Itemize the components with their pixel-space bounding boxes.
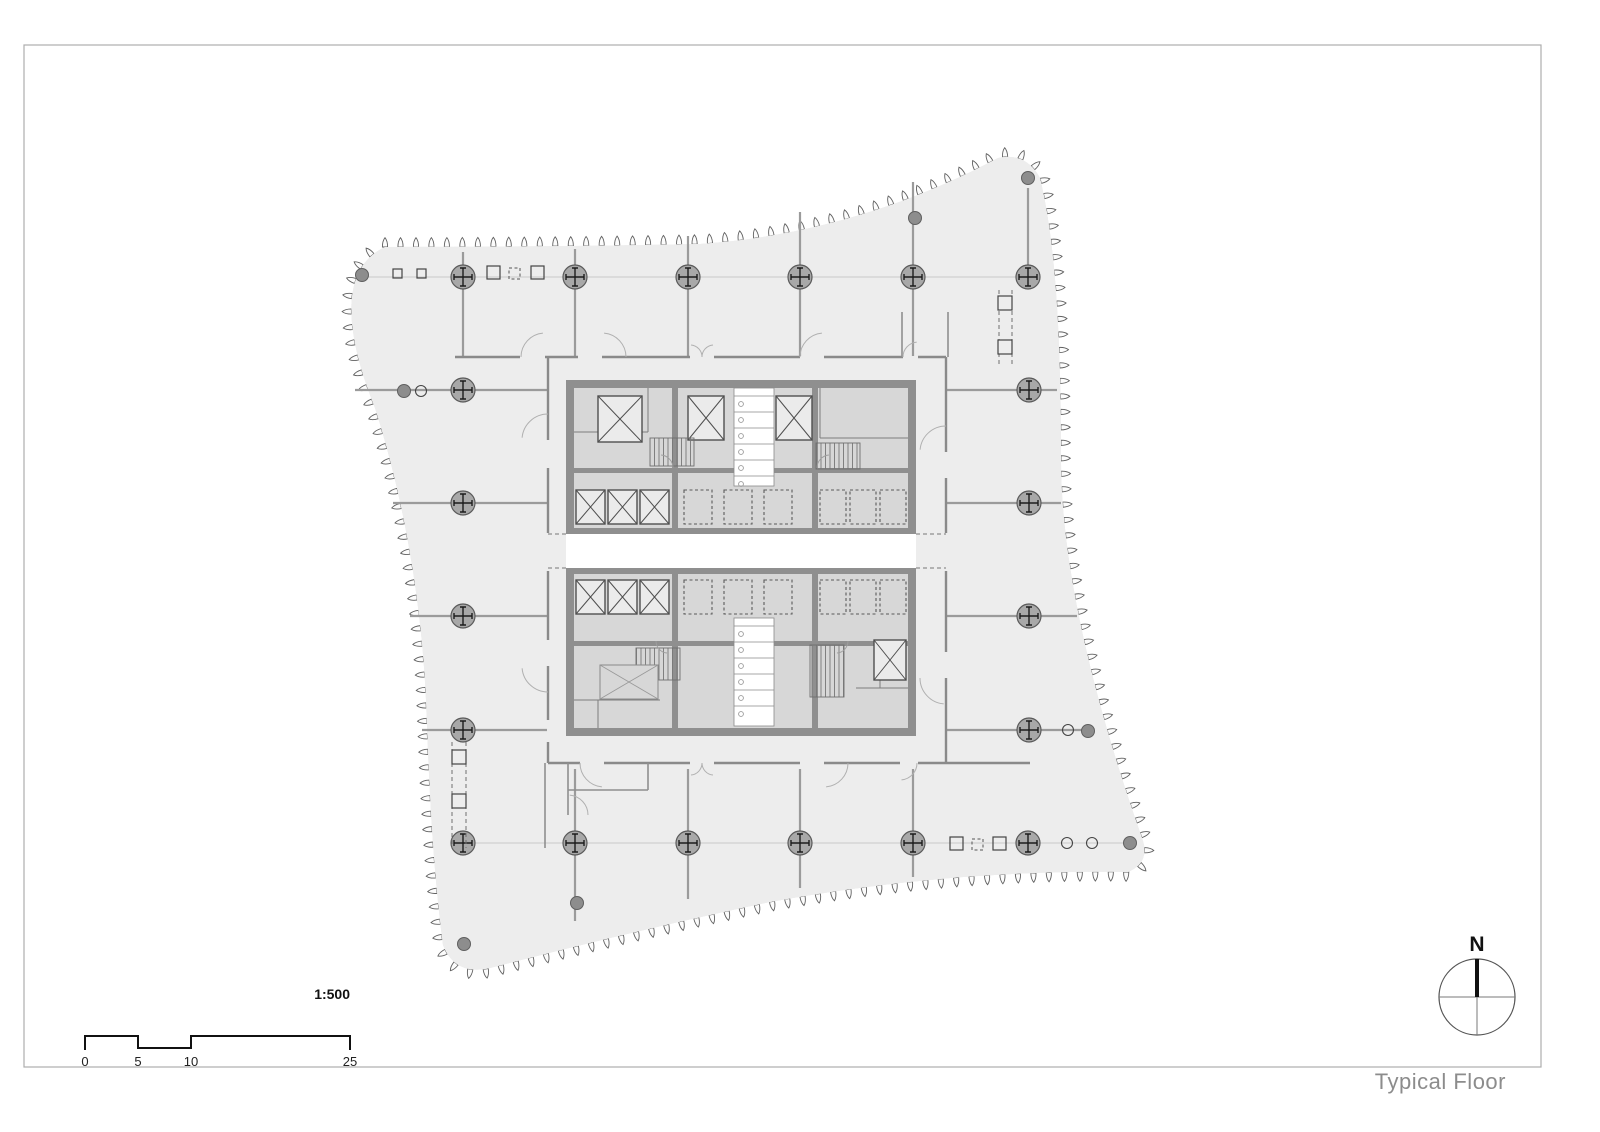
facade-fin (420, 780, 430, 786)
facade-fin (1000, 874, 1006, 884)
facade-fin (1058, 331, 1068, 337)
service-core (548, 380, 946, 736)
facade-fin (1056, 285, 1066, 291)
facade-fin (384, 473, 394, 480)
facade-fin (429, 238, 434, 247)
facade-fin (506, 237, 511, 246)
facade-fin (676, 235, 681, 244)
facade-fin (618, 935, 625, 945)
facade-fin (739, 907, 746, 917)
facade-fin (1091, 668, 1101, 675)
facade-fin (381, 458, 391, 465)
facade-fin (871, 200, 879, 210)
facade-fin (1046, 872, 1051, 881)
grid-dot (398, 385, 411, 398)
facade-fin (573, 946, 580, 956)
facade-fin (694, 917, 701, 927)
facade-fin (1018, 150, 1026, 161)
facade-fin (1067, 547, 1077, 553)
facade-fin (1130, 800, 1140, 808)
facade-fin (664, 924, 671, 934)
facade-fin (861, 887, 867, 897)
facade-fin (343, 292, 353, 298)
facade-fin (421, 796, 431, 802)
facade-fin (417, 718, 426, 724)
facade-fin (1070, 562, 1080, 569)
facade-fin (391, 503, 401, 510)
grid-dot (1082, 725, 1095, 738)
facade-fin (432, 934, 442, 940)
facade-fin (815, 893, 822, 903)
facade-fin (614, 236, 619, 245)
facade-fin (368, 414, 378, 422)
facade-fin (343, 324, 353, 330)
scale-bar-graphic (85, 1036, 350, 1050)
facade-fin (943, 172, 952, 183)
facade-fin (1046, 207, 1056, 214)
facade-fin (633, 931, 640, 941)
facade-fin (1062, 486, 1072, 492)
drawing-sheet: 1:500 0 5 10 25 N Typical Floor (0, 0, 1600, 1132)
facade-fin (400, 549, 410, 556)
facade-fin (1081, 623, 1091, 630)
stair-flight (650, 438, 694, 466)
facade-fin (345, 340, 355, 347)
facade-fin (1002, 148, 1008, 158)
grid-dot (1124, 837, 1137, 850)
facade-fin (1093, 872, 1098, 881)
scale-ratio-label: 1:500 (314, 986, 350, 1002)
facade-fin (353, 370, 363, 378)
facade-fin (1075, 592, 1085, 599)
feature-square-symbol (998, 340, 1012, 354)
facade-fin (954, 877, 960, 887)
stair-flight (816, 443, 860, 469)
facade-fin (812, 217, 819, 227)
facade-fin (984, 875, 990, 885)
facade-fin (1095, 682, 1105, 689)
facade-fin (388, 488, 398, 495)
facade-fin (528, 957, 535, 967)
facade-fin (827, 213, 834, 223)
facade-fin (630, 236, 635, 245)
facade-fin (429, 904, 439, 910)
facade-fin (1144, 848, 1153, 854)
facade-fin (1099, 697, 1109, 704)
facade-fin (1058, 316, 1068, 322)
grid-dot (458, 938, 471, 951)
facade-fin (1060, 378, 1069, 383)
scale-mark-25: 25 (343, 1054, 357, 1069)
facade-fin (831, 891, 838, 901)
facade-fin (737, 231, 743, 241)
facade-fin (1123, 872, 1128, 881)
facade-fin (1049, 223, 1059, 229)
facade-fin (1108, 872, 1113, 881)
facade-fin (424, 842, 434, 848)
facade-fin (398, 238, 403, 247)
facade-fin (649, 928, 656, 938)
facade-fin (900, 190, 908, 201)
facade-fin (419, 765, 429, 771)
facade-fin (1062, 872, 1067, 881)
facade-fin (782, 223, 789, 233)
facade-fin (422, 811, 432, 817)
toilet-block (734, 618, 774, 726)
facade-fin (382, 238, 387, 247)
facade-fin (483, 969, 490, 979)
facade-fin (568, 237, 573, 246)
facade-fin (709, 914, 716, 924)
facade-fin (769, 901, 776, 911)
facade-fin (1077, 872, 1082, 881)
facade-fin (363, 399, 374, 407)
facade-fin (645, 236, 650, 245)
facade-fin (423, 827, 433, 833)
facade-fin (1107, 727, 1117, 735)
facade-fin (1060, 363, 1069, 368)
facade-fin (342, 309, 351, 314)
facade-fin (372, 429, 382, 437)
facade-fin (475, 237, 480, 246)
scale-bar: 1:500 0 5 10 25 (81, 986, 357, 1069)
facade-fin (431, 919, 441, 925)
drawing-title: Typical Floor (1375, 1069, 1506, 1094)
facade-fin (679, 921, 686, 931)
facade-fin (886, 195, 894, 205)
scale-mark-0: 0 (81, 1054, 88, 1069)
facade-fin (426, 873, 436, 879)
core-wall (566, 728, 916, 736)
facade-fin (1121, 771, 1131, 779)
facade-fin (1015, 874, 1021, 884)
facade-fin (914, 184, 922, 195)
facade-fin (907, 882, 913, 892)
facade-fin (466, 969, 473, 979)
facade-fin (707, 234, 713, 244)
facade-fin (425, 857, 435, 863)
facade-fin (846, 889, 852, 899)
facade-fin (415, 672, 425, 678)
facade-fin (1057, 300, 1067, 306)
north-arrow: N (1439, 933, 1515, 1035)
facade-fin (1061, 456, 1070, 461)
core-wall (566, 380, 916, 388)
facade-fin (377, 443, 387, 450)
facade-fin (661, 235, 666, 244)
facade-fin (692, 235, 697, 244)
facade-fin (543, 953, 550, 963)
core-wall (566, 528, 916, 534)
facade-fin (603, 938, 610, 948)
facade-fin (403, 564, 413, 571)
facade-fin (349, 355, 359, 362)
facade-fin (1061, 471, 1070, 476)
scale-mark-5: 5 (134, 1054, 141, 1069)
facade-fin (358, 385, 368, 393)
facade-fin (785, 898, 792, 908)
grid-dot (1022, 172, 1035, 185)
grid-dot (909, 212, 922, 225)
facade-fin (407, 595, 417, 601)
facade-fin (1111, 742, 1121, 750)
facade-fin (842, 209, 850, 219)
facade-fin (857, 205, 865, 215)
facade-fin (397, 534, 407, 541)
facade-fin (1051, 238, 1061, 244)
facade-fin (877, 885, 883, 895)
feature-square-symbol (452, 750, 466, 764)
facade-fin (1084, 638, 1094, 645)
facade-fin (1064, 517, 1074, 523)
facade-fin (411, 626, 421, 632)
facade-fin (1072, 577, 1082, 584)
facade-fin (588, 942, 595, 952)
grid-dot (571, 897, 584, 910)
floor-plan-drawing: 1:500 0 5 10 25 N Typical Floor (0, 0, 1600, 1132)
facade-fin (427, 888, 437, 894)
facade-fin (1031, 873, 1037, 882)
facade-fin (923, 880, 929, 890)
facade-fin (1043, 192, 1053, 199)
scale-mark-10: 10 (184, 1054, 198, 1069)
core-corridor-band (566, 534, 916, 568)
facade-fin (1087, 653, 1097, 660)
facade-fin (1135, 815, 1145, 823)
facade-fin (405, 580, 415, 587)
facade-fin (1103, 712, 1113, 720)
facade-fin (929, 179, 937, 190)
facade-fin (460, 237, 465, 246)
facade-fin (416, 687, 426, 693)
facade-fin (1061, 425, 1070, 430)
facade-fin (1061, 440, 1070, 445)
facade-fin (767, 226, 774, 236)
facade-fin (522, 237, 527, 246)
corridor-band-extension (916, 535, 946, 567)
facade-fin (1053, 254, 1063, 260)
facade-fin (938, 879, 944, 889)
facade-fin (413, 238, 418, 247)
facade-fin (444, 238, 449, 247)
facade-fin (1040, 176, 1050, 183)
facade-fin (419, 749, 429, 755)
building-plan (342, 148, 1154, 979)
facade-fin (413, 641, 423, 647)
toilet-block (734, 388, 774, 486)
facade-fin (800, 896, 807, 906)
facade-fin (1140, 830, 1150, 838)
facade-fin (417, 703, 426, 709)
facade-fin (491, 237, 496, 246)
facade-fin (1059, 347, 1068, 353)
facade-fin (558, 949, 565, 959)
facade-fin (752, 228, 759, 238)
facade-fin (553, 237, 558, 246)
facade-fin (754, 904, 761, 914)
facade-fin (537, 237, 542, 246)
facade-fin (513, 961, 520, 971)
facade-fin (1054, 269, 1064, 275)
facade-fin (346, 276, 356, 284)
facade-fin (1125, 786, 1135, 794)
facade-fin (414, 657, 424, 663)
core-wall (566, 568, 916, 574)
facade-fin (722, 232, 728, 242)
facade-fin (498, 965, 505, 975)
facade-fin (394, 519, 404, 526)
facade-fin (1077, 608, 1087, 615)
facade-fin (892, 883, 898, 893)
feature-square-symbol (452, 794, 466, 808)
corridor-band-extension (548, 535, 566, 567)
facade-fin (1063, 501, 1073, 507)
facade-fin (1060, 394, 1069, 399)
facade-fin (1116, 756, 1126, 764)
facade-fin (969, 876, 975, 886)
facade-fin (418, 734, 428, 740)
feature-square-symbol (998, 296, 1012, 310)
facade-fin (583, 236, 588, 245)
north-label: N (1469, 933, 1484, 956)
facade-fin (1061, 409, 1070, 414)
grid-dot (356, 269, 369, 282)
facade-fin (599, 236, 604, 245)
facade-fin (1065, 532, 1075, 538)
facade-fin (724, 911, 731, 921)
